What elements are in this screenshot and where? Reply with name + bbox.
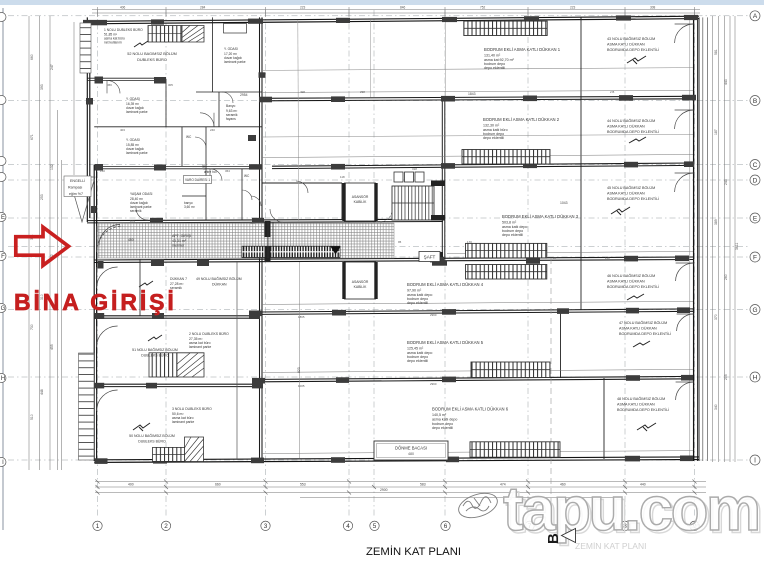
svg-text:depo eklentili: depo eklentili — [484, 66, 505, 70]
svg-text:B: B — [753, 98, 757, 105]
svg-text:2960: 2960 — [430, 382, 437, 386]
svg-text:B: B — [545, 533, 562, 544]
svg-text:253: 253 — [40, 194, 44, 200]
svg-text:450: 450 — [250, 221, 255, 225]
svg-text:ASMA KATLI DÜKKAN: ASMA KATLI DÜKKAN — [619, 327, 657, 331]
svg-text:BODRUM EKLİ ASMA KATLI DÜKKAN: BODRUM EKLİ ASMA KATLI DÜKKAN 1 — [484, 47, 561, 52]
svg-text:5: 5 — [373, 523, 377, 530]
svg-text:2: 2 — [164, 523, 168, 530]
svg-text:BODRUM EKLİ ASMA KATLI DÜKKAN: BODRUM EKLİ ASMA KATLI DÜKKAN 3 — [502, 214, 579, 219]
svg-text:Rampası: Rampası — [68, 186, 82, 190]
svg-text:205: 205 — [724, 374, 728, 380]
svg-text:403: 403 — [120, 128, 125, 132]
svg-text:BODRUM EKLİ ASMA KATLI DÜKKAN: BODRUM EKLİ ASMA KATLI DÜKKAN 4 — [407, 282, 484, 287]
svg-text:389: 389 — [714, 219, 718, 225]
svg-text:44 NOLU BAĞIMSIZ BÖLÜM: 44 NOLU BAĞIMSIZ BÖLÜM — [607, 118, 655, 123]
svg-text:1043: 1043 — [560, 201, 568, 205]
svg-text:51 NOLU BAĞIMSIZ BÖLÜM: 51 NOLU BAĞIMSIZ BÖLÜM — [132, 347, 178, 352]
svg-text:581: 581 — [714, 49, 718, 55]
svg-text:YAŞAM ODASI: YAŞAM ODASI — [130, 192, 153, 196]
svg-text:6: 6 — [444, 523, 448, 530]
svg-text:depo eklentili: depo eklentili — [483, 136, 504, 140]
svg-text:WC: WC — [186, 135, 192, 139]
svg-text:660: 660 — [215, 483, 221, 487]
svg-text:49 NOLU BAĞIMSIZ BÖLÜM: 49 NOLU BAĞIMSIZ BÖLÜM — [196, 276, 242, 281]
svg-text:Banyo: Banyo — [226, 104, 236, 108]
svg-text:4: 4 — [346, 523, 350, 530]
svg-text:503,8 m²: 503,8 m² — [502, 221, 517, 225]
svg-text:H: H — [1, 376, 5, 382]
svg-text:132: 132 — [50, 164, 54, 170]
svg-text:BODRUM EKLİ ASMA KATLI DÜKKAN: BODRUM EKLİ ASMA KATLI DÜKKAN 2 — [483, 117, 560, 122]
svg-text:95: 95 — [398, 240, 402, 244]
svg-text:ASANSÖR: ASANSÖR — [352, 280, 369, 284]
svg-text:BODRUMDA DEPO EKLENTİLİ: BODRUMDA DEPO EKLENTİLİ — [617, 407, 669, 412]
svg-text:3,60 m²: 3,60 m² — [184, 205, 195, 209]
svg-text:Y. ODASI: Y. ODASI — [224, 47, 238, 51]
svg-text:583: 583 — [420, 483, 426, 487]
svg-text:ASMA KATLI DÜKKAN: ASMA KATLI DÜKKAN — [607, 43, 645, 47]
svg-text:97,90 m²: 97,90 m² — [407, 289, 422, 293]
svg-text:ASMA KATLI DÜKKAN: ASMA KATLI DÜKKAN — [607, 125, 645, 129]
svg-text:BODRUMDA DEPO EKLENTİLİ: BODRUMDA DEPO EKLENTİLİ — [607, 284, 659, 289]
svg-text:ŞAFT: ŞAFT — [424, 255, 436, 260]
svg-text:170: 170 — [467, 240, 472, 244]
svg-text:Y. ODASI: Y. ODASI — [126, 97, 140, 101]
svg-text:510: 510 — [30, 414, 34, 420]
svg-text:243: 243 — [724, 179, 728, 185]
svg-text:305: 305 — [168, 83, 173, 87]
svg-text:46 NOLU BAĞIMSIZ BÖLÜM: 46 NOLU BAĞIMSIZ BÖLÜM — [607, 273, 655, 278]
svg-text:depo eklentili: depo eklentili — [407, 301, 428, 305]
svg-text:730: 730 — [30, 324, 34, 330]
svg-text:247: 247 — [50, 64, 54, 70]
svg-text:879: 879 — [130, 219, 135, 223]
svg-text:WC: WC — [244, 174, 250, 178]
svg-text:450: 450 — [128, 238, 134, 242]
svg-text:seramik: seramik — [130, 209, 142, 213]
svg-text:340: 340 — [714, 404, 718, 410]
svg-text:C: C — [753, 162, 758, 169]
svg-text:laminant parke: laminant parke — [126, 110, 148, 114]
svg-text:3: 3 — [264, 523, 268, 530]
svg-text:KABİLİK: KABİLİK — [354, 284, 368, 289]
svg-text:408: 408 — [300, 90, 305, 94]
svg-text:318: 318 — [412, 167, 417, 171]
svg-text:94: 94 — [553, 256, 557, 260]
svg-text:D: D — [753, 177, 758, 184]
svg-text:BODRUMDA DEPO EKLENTİLİ: BODRUMDA DEPO EKLENTİLİ — [619, 331, 671, 336]
svg-text:455: 455 — [50, 344, 54, 350]
svg-text:823: 823 — [297, 367, 301, 373]
svg-text:43,31 m²: 43,31 m² — [172, 239, 187, 243]
svg-text:2 NOLU DUBLEKS BÜRO: 2 NOLU DUBLEKS BÜRO — [189, 332, 229, 336]
svg-text:mermer: mermer — [172, 244, 185, 248]
svg-text:1843: 1843 — [468, 92, 476, 96]
svg-text:480: 480 — [408, 452, 414, 456]
svg-text:150: 150 — [100, 169, 105, 173]
svg-text:E: E — [1, 215, 5, 221]
svg-text:laminant parke: laminant parke — [189, 345, 211, 349]
svg-text:DÜKKAN 7: DÜKKAN 7 — [170, 277, 187, 281]
svg-text:2 B: 2 B — [610, 90, 614, 94]
svg-text:F: F — [753, 254, 757, 261]
svg-text:asma katlı depo: asma katlı depo — [432, 418, 457, 422]
svg-text:52 NOLU BAGIMSIZ BÖLÜM: 52 NOLU BAGIMSIZ BÖLÜM — [127, 52, 177, 56]
svg-text:132,30 m²: 132,30 m² — [483, 124, 500, 128]
svg-text:495: 495 — [202, 164, 206, 170]
svg-text:depo eklentili: depo eklentili — [432, 426, 453, 430]
svg-text:ZEMİN KAT PLANI: ZEMİN KAT PLANI — [575, 541, 646, 551]
svg-text:laminant parke: laminant parke — [126, 151, 148, 155]
svg-text:BODRUMDA DEPO EKLENTİLİ: BODRUMDA DEPO EKLENTİLİ — [607, 47, 659, 52]
svg-text:laminant parke: laminant parke — [224, 60, 246, 64]
svg-text:DÜKKAN: DÜKKAN — [212, 283, 227, 287]
svg-text:ASMA KATLI DÜKKAN: ASMA KATLI DÜKKAN — [617, 403, 655, 407]
svg-text:223: 223 — [570, 6, 576, 10]
svg-text:VARO DAİRESİ 1: VARO DAİRESİ 1 — [185, 177, 210, 182]
svg-text:118: 118 — [605, 256, 610, 260]
svg-text:118: 118 — [340, 175, 345, 179]
svg-text:125,45 m²: 125,45 m² — [407, 347, 424, 351]
svg-text:1865: 1865 — [298, 315, 305, 319]
svg-text:364: 364 — [225, 169, 230, 173]
svg-text:BODRUM EKLİ ASMA KATLI DÜKKAN: BODRUM EKLİ ASMA KATLI DÜKKAN 6 — [432, 407, 509, 412]
svg-text:1: 1 — [96, 523, 100, 530]
svg-text:F: F — [1, 254, 5, 260]
svg-text:H: H — [753, 374, 758, 381]
svg-text:1 NOLU DUBLEKS BÜRO: 1 NOLU DUBLEKS BÜRO — [104, 28, 143, 32]
svg-text:depo eklentili: depo eklentili — [407, 359, 428, 363]
svg-text:393: 393 — [40, 84, 44, 90]
svg-text:BODRUM EKLİ ASMA KATLI DÜKKAN: BODRUM EKLİ ASMA KATLI DÜKKAN 5 — [407, 340, 484, 345]
svg-text:ASANSÖR: ASANSÖR — [352, 195, 369, 199]
svg-text:752: 752 — [480, 6, 486, 10]
svg-text:BODRUMDA DEPO EKLENTİLİ: BODRUMDA DEPO EKLENTİLİ — [607, 129, 659, 134]
svg-text:depo eklentili: depo eklentili — [502, 233, 523, 237]
svg-text:DUBLEKS BÜRO: DUBLEKS BÜRO — [138, 440, 166, 444]
svg-text:48 NOLU BAĞIMSIZ BÖLÜM: 48 NOLU BAĞIMSIZ BÖLÜM — [617, 396, 665, 401]
svg-text:400: 400 — [128, 483, 134, 487]
svg-text:tapu.com: tapu.com — [503, 475, 759, 544]
svg-text:E: E — [753, 215, 758, 222]
svg-text:43 NOLU BAĞIMSIZ BÖLÜM: 43 NOLU BAĞIMSIZ BÖLÜM — [607, 36, 655, 41]
svg-text:net kullanım: net kullanım — [104, 41, 122, 45]
svg-text:2954: 2954 — [240, 93, 248, 97]
svg-text:3 NOLU DUBLEKS BÜRO: 3 NOLU DUBLEKS BÜRO — [172, 407, 212, 411]
svg-text:ASMA KATLI DÜKKAN: ASMA KATLI DÜKKAN — [607, 192, 645, 196]
svg-text:846: 846 — [400, 6, 406, 10]
svg-text:45 NOLU BAĞIMSIZ BÖLÜM: 45 NOLU BAĞIMSIZ BÖLÜM — [607, 185, 655, 190]
svg-text:284: 284 — [200, 6, 206, 10]
svg-text:298: 298 — [360, 90, 365, 94]
svg-text:eğim %7: eğim %7 — [69, 192, 83, 196]
svg-text:ZEMİN KAT PLANI: ZEMİN KAT PLANI — [366, 545, 461, 558]
svg-text:140,5 m²: 140,5 m² — [432, 413, 447, 417]
svg-text:448: 448 — [40, 389, 44, 395]
svg-text:ENGELLİ: ENGELLİ — [70, 178, 85, 183]
svg-text:260: 260 — [724, 274, 728, 280]
svg-text:DUBLEKS BÜRO: DUBLEKS BÜRO — [141, 354, 169, 358]
svg-text:443: 443 — [724, 79, 728, 85]
svg-text:131,40 m²: 131,40 m² — [484, 54, 501, 58]
svg-text:APT. GİRİŞİ: APT. GİRİŞİ — [172, 233, 191, 238]
svg-text:456: 456 — [107, 83, 112, 87]
svg-text:406: 406 — [120, 6, 126, 10]
svg-text:240: 240 — [210, 128, 215, 132]
svg-text:2960: 2960 — [430, 313, 437, 317]
svg-text:308: 308 — [650, 6, 656, 10]
svg-text:2900: 2900 — [380, 488, 388, 492]
svg-text:223: 223 — [300, 6, 306, 10]
svg-text:370: 370 — [714, 314, 718, 320]
svg-text:50 NOLU BAĞIMSIZ BÖLÜM: 50 NOLU BAĞIMSIZ BÖLÜM — [129, 433, 175, 438]
svg-text:BODRUMDA DEPO EKLENTİLİ: BODRUMDA DEPO EKLENTİLİ — [607, 196, 659, 201]
svg-text:DUBLEKS BÜRO: DUBLEKS BÜRO — [137, 58, 167, 62]
svg-text:laminant parke: laminant parke — [172, 420, 194, 424]
svg-text:KABİLİK: KABİLİK — [354, 199, 368, 204]
svg-text:G: G — [1, 306, 6, 312]
svg-text:DÖNME BACASI: DÖNME BACASI — [395, 446, 427, 451]
svg-text:660: 660 — [30, 54, 34, 60]
svg-text:BİNA GİRİŞİ: BİNA GİRİŞİ — [14, 289, 177, 315]
svg-text:fayans: fayans — [226, 117, 236, 121]
svg-text:Y. ODASI: Y. ODASI — [126, 138, 140, 142]
svg-text:ASMA KATLI DÜKKAN: ASMA KATLI DÜKKAN — [607, 280, 645, 284]
svg-text:1005: 1005 — [298, 384, 305, 388]
svg-text:47 NOLU BAĞIMSIZ BÖLÜM: 47 NOLU BAĞIMSIZ BÖLÜM — [619, 320, 667, 325]
svg-text:İ: İ — [754, 455, 756, 464]
svg-text:A: A — [753, 13, 758, 20]
svg-text:G: G — [752, 307, 757, 314]
svg-text:187: 187 — [714, 129, 718, 135]
svg-text:3611: 3611 — [735, 243, 739, 250]
svg-text:553: 553 — [300, 483, 306, 487]
svg-text:671: 671 — [30, 134, 34, 140]
